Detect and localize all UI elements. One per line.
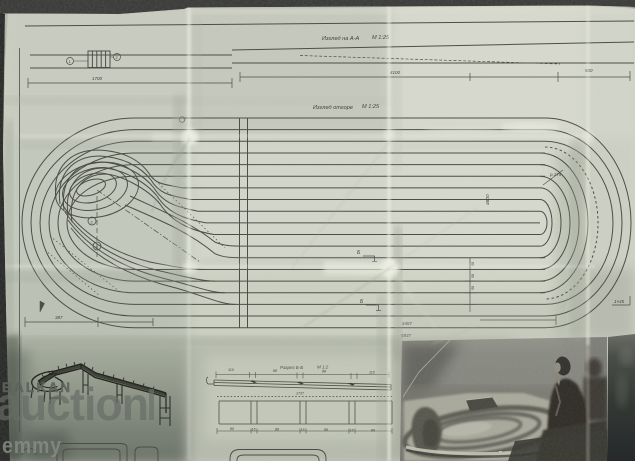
svg-text:emmy: emmy — [2, 433, 62, 458]
svg-text:auction: auction — [0, 378, 148, 430]
